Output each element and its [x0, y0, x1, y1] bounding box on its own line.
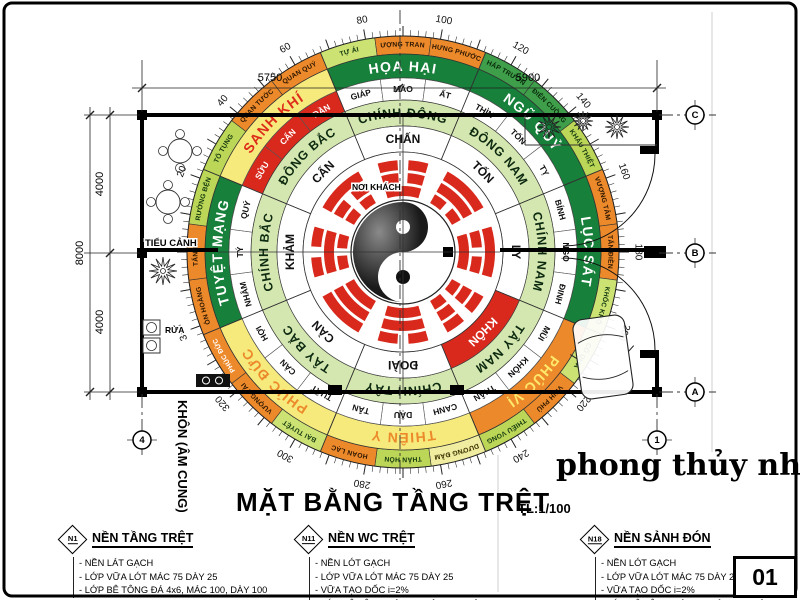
label-rua: RỬA: [165, 324, 184, 335]
sheet-number-box: 01: [733, 556, 797, 598]
grid-marker-label: 4: [139, 435, 145, 446]
grid-marker-label: B: [692, 248, 699, 259]
dim-top-right: 5900: [516, 72, 540, 84]
degree-label: 120: [511, 40, 531, 58]
dim-top-left: 5750: [258, 72, 282, 84]
grid-marker-label: 1: [654, 435, 660, 446]
degree-label: 160: [616, 162, 632, 182]
drawing-scale: TL:1/100: [518, 501, 571, 516]
degree-label: 100: [435, 14, 454, 28]
degree-label: 240: [510, 447, 530, 465]
ring24-label: TRƯỜNG BỆNH: [0, 0, 213, 221]
dim-left-lower: 4000: [94, 310, 106, 334]
degree-label: 140: [573, 91, 592, 111]
sheet-number: 01: [752, 564, 778, 591]
label-tieu-canh: TIỂU CẢNH: [145, 237, 197, 249]
degree-label: 80: [356, 14, 369, 27]
floorplan-sheet: TỐ TỤNGQUAN TƯỚCQUAN QUÝTỰ ÁIVƯỢNG TRANG…: [0, 0, 800, 600]
label-noi-khach: NƠI KHÁCH: [352, 182, 401, 192]
degree-label: 60: [278, 41, 294, 56]
degree-label: 180: [633, 244, 644, 261]
branch-label: DẬU: [394, 410, 412, 421]
dim-left-upper: 4000: [94, 172, 106, 196]
degree-label: 40: [215, 93, 231, 109]
page-title: MẶT BẰNG TẦNG TRỆT: [236, 487, 550, 518]
degree-label: 320: [213, 393, 232, 413]
grid-marker-label: C: [692, 110, 699, 121]
label-khon-am-cung: KHÔN (ÂM CUNG): [175, 400, 190, 513]
degree-label: 300: [275, 446, 295, 464]
dim-left-total: 8000: [74, 241, 86, 265]
watermark-text: phong thủy nhà ở: [556, 448, 800, 483]
grid-marker-label: A: [692, 387, 699, 398]
branch-label: MÃO: [393, 84, 413, 94]
bagua-compass: TỐ TỤNGQUAN TƯỚCQUAN QUÝTỰ ÁIVƯỢNG TRANG…: [0, 0, 644, 490]
